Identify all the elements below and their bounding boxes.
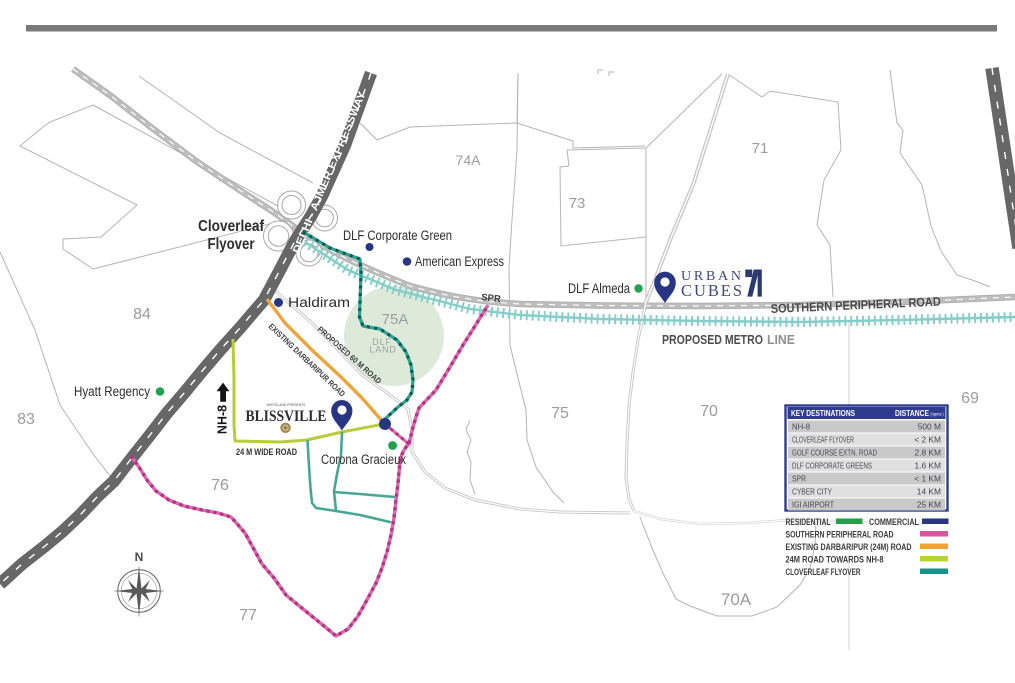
- svg-text:N: N: [135, 550, 144, 564]
- svg-text:Haldiram: Haldiram: [288, 295, 350, 310]
- svg-text:< 2 KM: < 2 KM: [914, 435, 941, 445]
- svg-text:LAND: LAND: [369, 345, 396, 355]
- svg-text:84: 84: [133, 306, 151, 323]
- svg-text:Corona Gracieux: Corona Gracieux: [321, 452, 406, 467]
- svg-text:DISTANCE: DISTANCE: [895, 408, 929, 418]
- svg-text:WHITELAND PRESENTS: WHITELAND PRESENTS: [267, 403, 307, 407]
- svg-text:CLOVERLEAF FLYOVER: CLOVERLEAF FLYOVER: [792, 435, 854, 445]
- svg-text:14 KM: 14 KM: [917, 487, 941, 497]
- svg-text:71: 71: [752, 140, 769, 157]
- svg-text:2.8 KM: 2.8 KM: [914, 448, 941, 458]
- svg-text:DLF Almeda: DLF Almeda: [568, 281, 630, 296]
- svg-text:SOUTHERN PERIPHERAL ROAD: SOUTHERN PERIPHERAL ROAD: [786, 530, 894, 540]
- svg-text:IGI AIRPORT: IGI AIRPORT: [792, 500, 834, 510]
- svg-text:24 M WIDE ROAD: 24 M WIDE ROAD: [236, 447, 297, 457]
- svg-text:NH-8: NH-8: [216, 405, 230, 434]
- svg-text:77: 77: [239, 607, 257, 624]
- svg-text:500 M: 500 M: [918, 422, 941, 432]
- svg-text:DLF Corporate Green: DLF Corporate Green: [343, 228, 452, 243]
- svg-text:75A: 75A: [382, 311, 409, 328]
- svg-text:(Approx.): (Approx.): [931, 412, 944, 417]
- svg-text:CLOVERLEAF FLYOVER: CLOVERLEAF FLYOVER: [786, 567, 861, 577]
- svg-text:CYBER CITY: CYBER CITY: [792, 487, 832, 497]
- svg-text:74A: 74A: [456, 152, 482, 168]
- svg-text:RESIDENTIAL: RESIDENTIAL: [786, 517, 831, 527]
- svg-text:PROPOSED METRO: PROPOSED METRO: [662, 333, 763, 347]
- svg-text:75: 75: [551, 405, 569, 422]
- svg-text:EXISTING DARBARIPUR (24M) ROAD: EXISTING DARBARIPUR (24M) ROAD: [786, 542, 912, 552]
- svg-text:CUBES: CUBES: [681, 281, 742, 300]
- svg-text:LINE: LINE: [767, 333, 795, 347]
- svg-text:Flyover: Flyover: [208, 236, 255, 253]
- svg-text:69: 69: [961, 390, 979, 407]
- svg-text:American Express: American Express: [415, 254, 504, 269]
- svg-text:83: 83: [17, 411, 35, 428]
- svg-text:< 1 KM: < 1 KM: [914, 474, 941, 484]
- svg-text:70A: 70A: [721, 590, 752, 609]
- svg-text:73: 73: [569, 195, 586, 212]
- svg-text:1.6 KM: 1.6 KM: [914, 461, 941, 471]
- svg-text:24M ROAD TOWARDS NH-8: 24M ROAD TOWARDS NH-8: [786, 555, 884, 565]
- svg-text:NH-8: NH-8: [792, 422, 810, 432]
- svg-text:25 KM: 25 KM: [917, 500, 941, 510]
- svg-text:KEY DESTINATIONS: KEY DESTINATIONS: [791, 408, 855, 418]
- svg-text:SPR: SPR: [792, 474, 806, 484]
- svg-text:70: 70: [700, 403, 718, 420]
- svg-text:Cloverleaf: Cloverleaf: [198, 218, 265, 235]
- svg-text:76: 76: [211, 477, 229, 494]
- svg-text:COMMERCIAL: COMMERCIAL: [869, 517, 919, 527]
- svg-text:DLF CORPORATE GREENS: DLF CORPORATE GREENS: [792, 461, 872, 471]
- svg-text:Hyatt Regency: Hyatt Regency: [74, 384, 150, 399]
- svg-text:BLISSVILLE: BLISSVILLE: [246, 408, 327, 425]
- svg-text:GOLF COURSE EXTN. ROAD: GOLF COURSE EXTN. ROAD: [792, 448, 877, 458]
- svg-text:SPR: SPR: [481, 292, 502, 305]
